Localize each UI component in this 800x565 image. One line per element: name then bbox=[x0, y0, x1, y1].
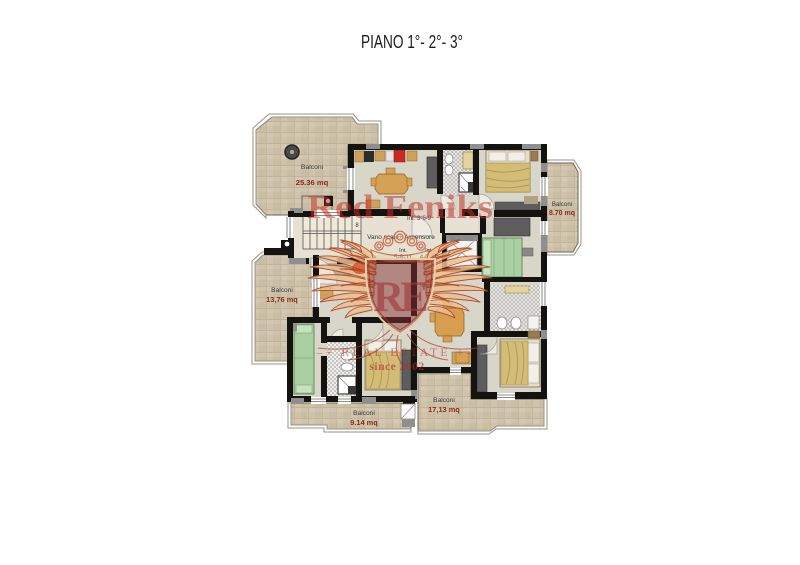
svg-text:since 2002: since 2002 bbox=[369, 361, 424, 373]
svg-text:Balconi: Balconi bbox=[552, 201, 572, 208]
svg-text:Balconi: Balconi bbox=[301, 164, 324, 171]
svg-text:13,76 mq: 13,76 mq bbox=[266, 295, 298, 304]
svg-text:17,13 mq: 17,13 mq bbox=[428, 405, 460, 414]
svg-text:PIANO 1°- 2°- 3°: PIANO 1°- 2°- 3° bbox=[361, 32, 463, 52]
svg-text:Red Feniks: Red Feniks bbox=[307, 189, 493, 226]
svg-text:8.70 mq: 8.70 mq bbox=[549, 210, 575, 217]
svg-text:Balconi: Balconi bbox=[271, 287, 293, 294]
svg-text:RE: RE bbox=[373, 274, 427, 321]
svg-text:–+ REAL ESTATE +–: –+ REAL ESTATE +– bbox=[316, 345, 476, 359]
svg-text:9.14 mq: 9.14 mq bbox=[350, 418, 378, 427]
svg-text:Balconi: Balconi bbox=[433, 397, 455, 404]
svg-text:Balconi: Balconi bbox=[353, 410, 375, 417]
svg-text:25.36 mq: 25.36 mq bbox=[296, 178, 329, 187]
